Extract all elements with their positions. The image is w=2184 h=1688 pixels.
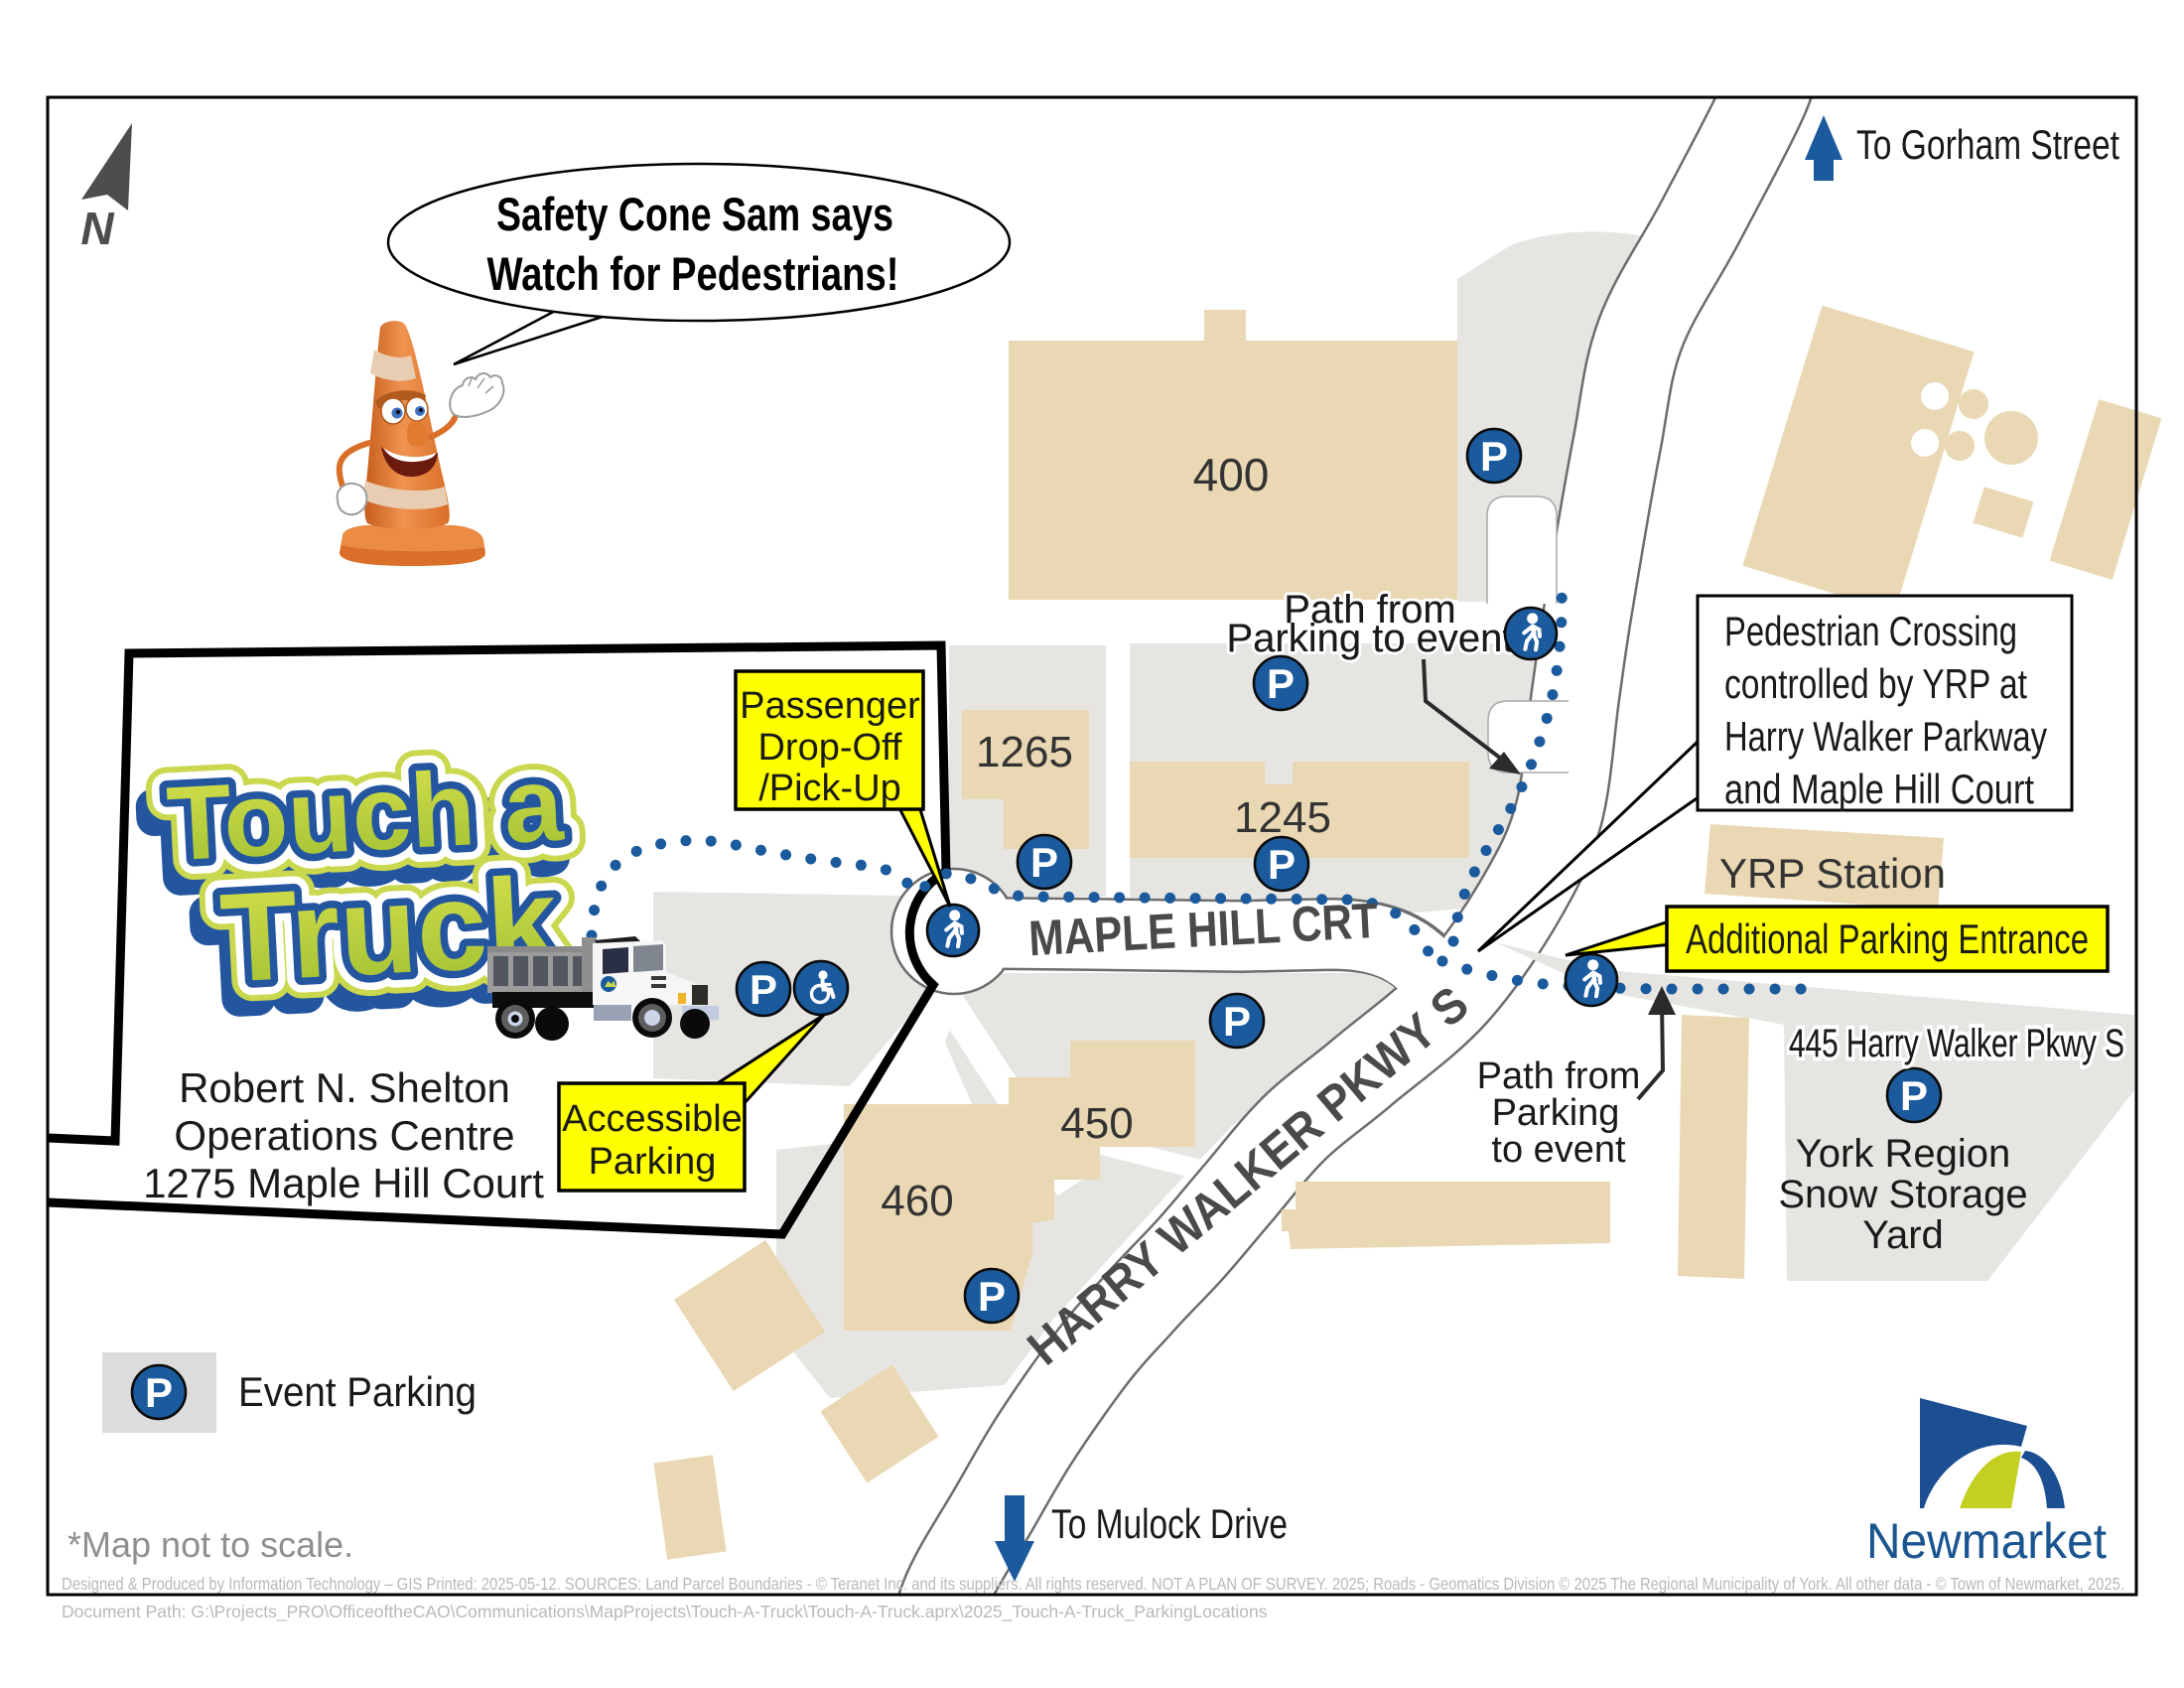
svg-text:Document Path: G:\Projects_PRO: Document Path: G:\Projects_PRO\Officeoft… xyxy=(62,1602,1268,1622)
svg-text:N: N xyxy=(80,203,114,254)
svg-text:York Region: York Region xyxy=(1796,1132,2010,1176)
svg-text:1265: 1265 xyxy=(976,728,1073,776)
svg-text:Newmarket: Newmarket xyxy=(1866,1513,2107,1569)
svg-text:controlled by YRP at: controlled by YRP at xyxy=(1724,660,2027,707)
svg-text:1245: 1245 xyxy=(1234,793,1331,842)
svg-text:Pedestrian Crossing: Pedestrian Crossing xyxy=(1724,608,2017,654)
svg-text:445 Harry Walker Pkwy S: 445 Harry Walker Pkwy S xyxy=(1789,1022,2124,1065)
svg-text:Robert N. Shelton: Robert N. Shelton xyxy=(179,1064,510,1111)
svg-text:Snow Storage: Snow Storage xyxy=(1778,1173,2027,1216)
svg-text:Accessible: Accessible xyxy=(562,1098,743,1140)
svg-text:Parking: Parking xyxy=(589,1141,717,1183)
svg-text:Yard: Yard xyxy=(1862,1213,1944,1257)
svg-text:to event: to event xyxy=(1491,1129,1626,1171)
svg-text:Watch for Pedestrians!: Watch for Pedestrians! xyxy=(487,247,899,300)
svg-text:Harry Walker Parkway: Harry Walker Parkway xyxy=(1724,713,2047,760)
svg-text:Path from: Path from xyxy=(1477,1055,1641,1097)
svg-text:400: 400 xyxy=(1193,449,1270,500)
svg-text:450: 450 xyxy=(1060,1099,1133,1148)
svg-text:and Maple Hill Court: and Maple Hill Court xyxy=(1724,766,2034,812)
svg-text:Parking to event: Parking to event xyxy=(1226,617,1513,660)
svg-text:Safety Cone Sam says: Safety Cone Sam says xyxy=(496,188,893,240)
svg-text:1275 Maple Hill Court: 1275 Maple Hill Court xyxy=(143,1160,544,1206)
svg-text:Event Parking: Event Parking xyxy=(238,1368,477,1415)
svg-text:Additional Parking Entrance: Additional Parking Entrance xyxy=(1686,915,2089,962)
svg-text:460: 460 xyxy=(881,1177,953,1225)
svg-text:YRP Station: YRP Station xyxy=(1719,850,1946,897)
svg-text:Drop-Off: Drop-Off xyxy=(757,727,901,769)
svg-text:/Pick-Up: /Pick-Up xyxy=(758,768,901,809)
svg-text:Designed & Produced by Informa: Designed & Produced by Information Techn… xyxy=(62,1574,2124,1594)
svg-text:Passenger: Passenger xyxy=(740,685,920,727)
svg-text:*Map not to scale.: *Map not to scale. xyxy=(68,1524,353,1565)
svg-text:To Mulock Drive: To Mulock Drive xyxy=(1051,1500,1288,1547)
svg-text:Parking: Parking xyxy=(1492,1092,1620,1134)
svg-text:To Gorham Street: To Gorham Street xyxy=(1856,121,2119,168)
svg-text:Operations Centre: Operations Centre xyxy=(174,1112,514,1159)
